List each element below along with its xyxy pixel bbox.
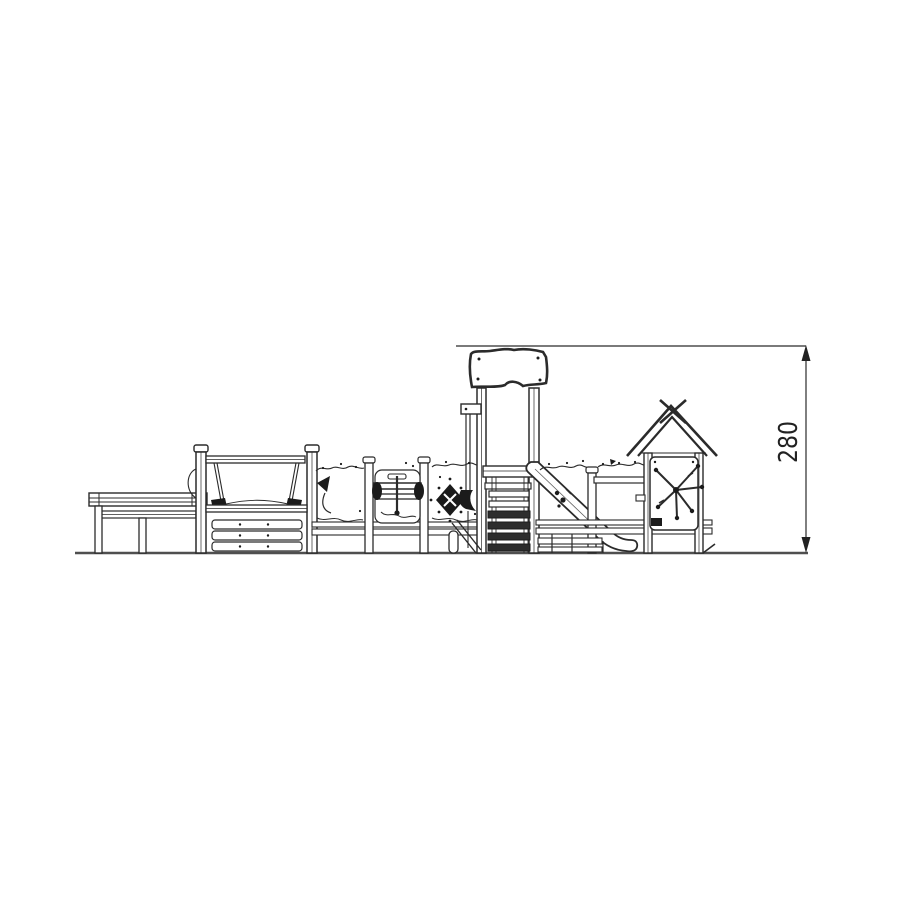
hammock-sling	[226, 500, 288, 504]
post	[365, 463, 373, 553]
wavy-panel-top	[540, 465, 587, 470]
hammock-swing-frame	[188, 445, 319, 553]
dimension-arrow-down-icon	[802, 537, 811, 553]
pennant-flag-decal	[317, 476, 330, 492]
drawing-canvas: 280	[0, 0, 900, 900]
post-cap	[194, 445, 208, 452]
wavy-panel-top	[598, 463, 645, 467]
post-cap	[363, 457, 375, 463]
post-cap	[305, 445, 319, 452]
slat-climbing-panel	[212, 520, 302, 551]
bollard-post	[449, 531, 458, 553]
dimension-label: 280	[774, 421, 804, 463]
post	[420, 463, 428, 553]
rotating-drum-play-panel	[372, 470, 424, 523]
table-leg	[139, 518, 146, 553]
table-leg	[95, 506, 102, 553]
wavy-panel-top	[432, 463, 478, 467]
post-cap	[586, 467, 598, 473]
top-rail	[594, 477, 645, 483]
picnic-table	[89, 493, 207, 553]
dimension-arrow-up-icon	[802, 345, 811, 361]
canopy-roof	[470, 349, 547, 387]
elevation-drawing-svg: 280	[0, 0, 900, 900]
post-cap	[418, 457, 430, 463]
